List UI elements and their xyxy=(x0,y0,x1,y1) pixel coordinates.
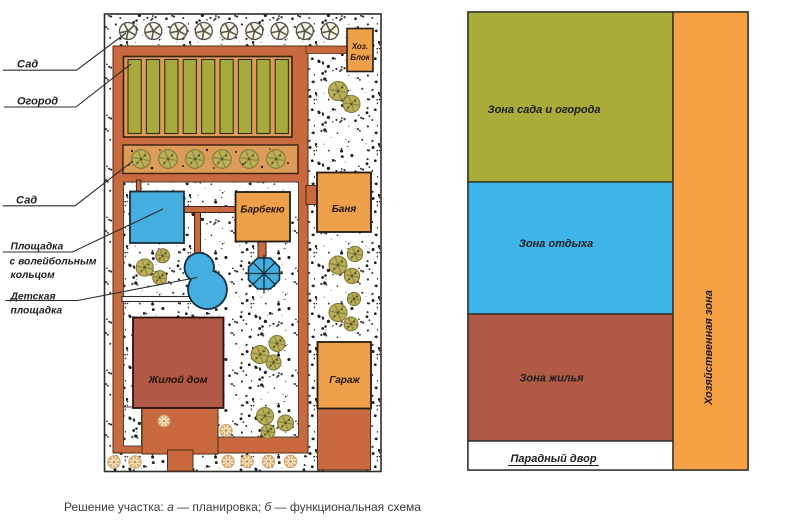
svg-text:Сад: Сад xyxy=(17,59,38,71)
svg-text:Баня: Баня xyxy=(332,204,357,215)
svg-text:Хозяйственная зона: Хозяйственная зона xyxy=(703,290,715,406)
svg-text:Огород: Огород xyxy=(17,96,58,108)
svg-text:Хоз.: Хоз. xyxy=(351,42,368,51)
svg-text:Блок: Блок xyxy=(350,53,371,62)
svg-text:Парадный двор: Парадный двор xyxy=(510,453,596,465)
svg-text:Решение участка: а — планировк: Решение участка: а — планировка; б — фун… xyxy=(64,500,421,514)
svg-text:Жилой дом: Жилой дом xyxy=(148,374,208,386)
svg-text:Сад: Сад xyxy=(16,195,37,207)
svg-text:Зона сада и огорода: Зона сада и огорода xyxy=(488,104,601,116)
svg-text:Площадка: Площадка xyxy=(11,242,64,253)
svg-text:площадка: площадка xyxy=(11,306,63,317)
svg-text:Зона отдыха: Зона отдыха xyxy=(519,238,593,250)
svg-text:с волейбольным: с волейбольным xyxy=(10,256,97,268)
svg-text:Зона жилья: Зона жилья xyxy=(519,373,584,385)
svg-text:Гараж: Гараж xyxy=(329,375,360,386)
svg-text:кольцом: кольцом xyxy=(11,270,56,281)
svg-text:Барбекю: Барбекю xyxy=(240,204,285,216)
